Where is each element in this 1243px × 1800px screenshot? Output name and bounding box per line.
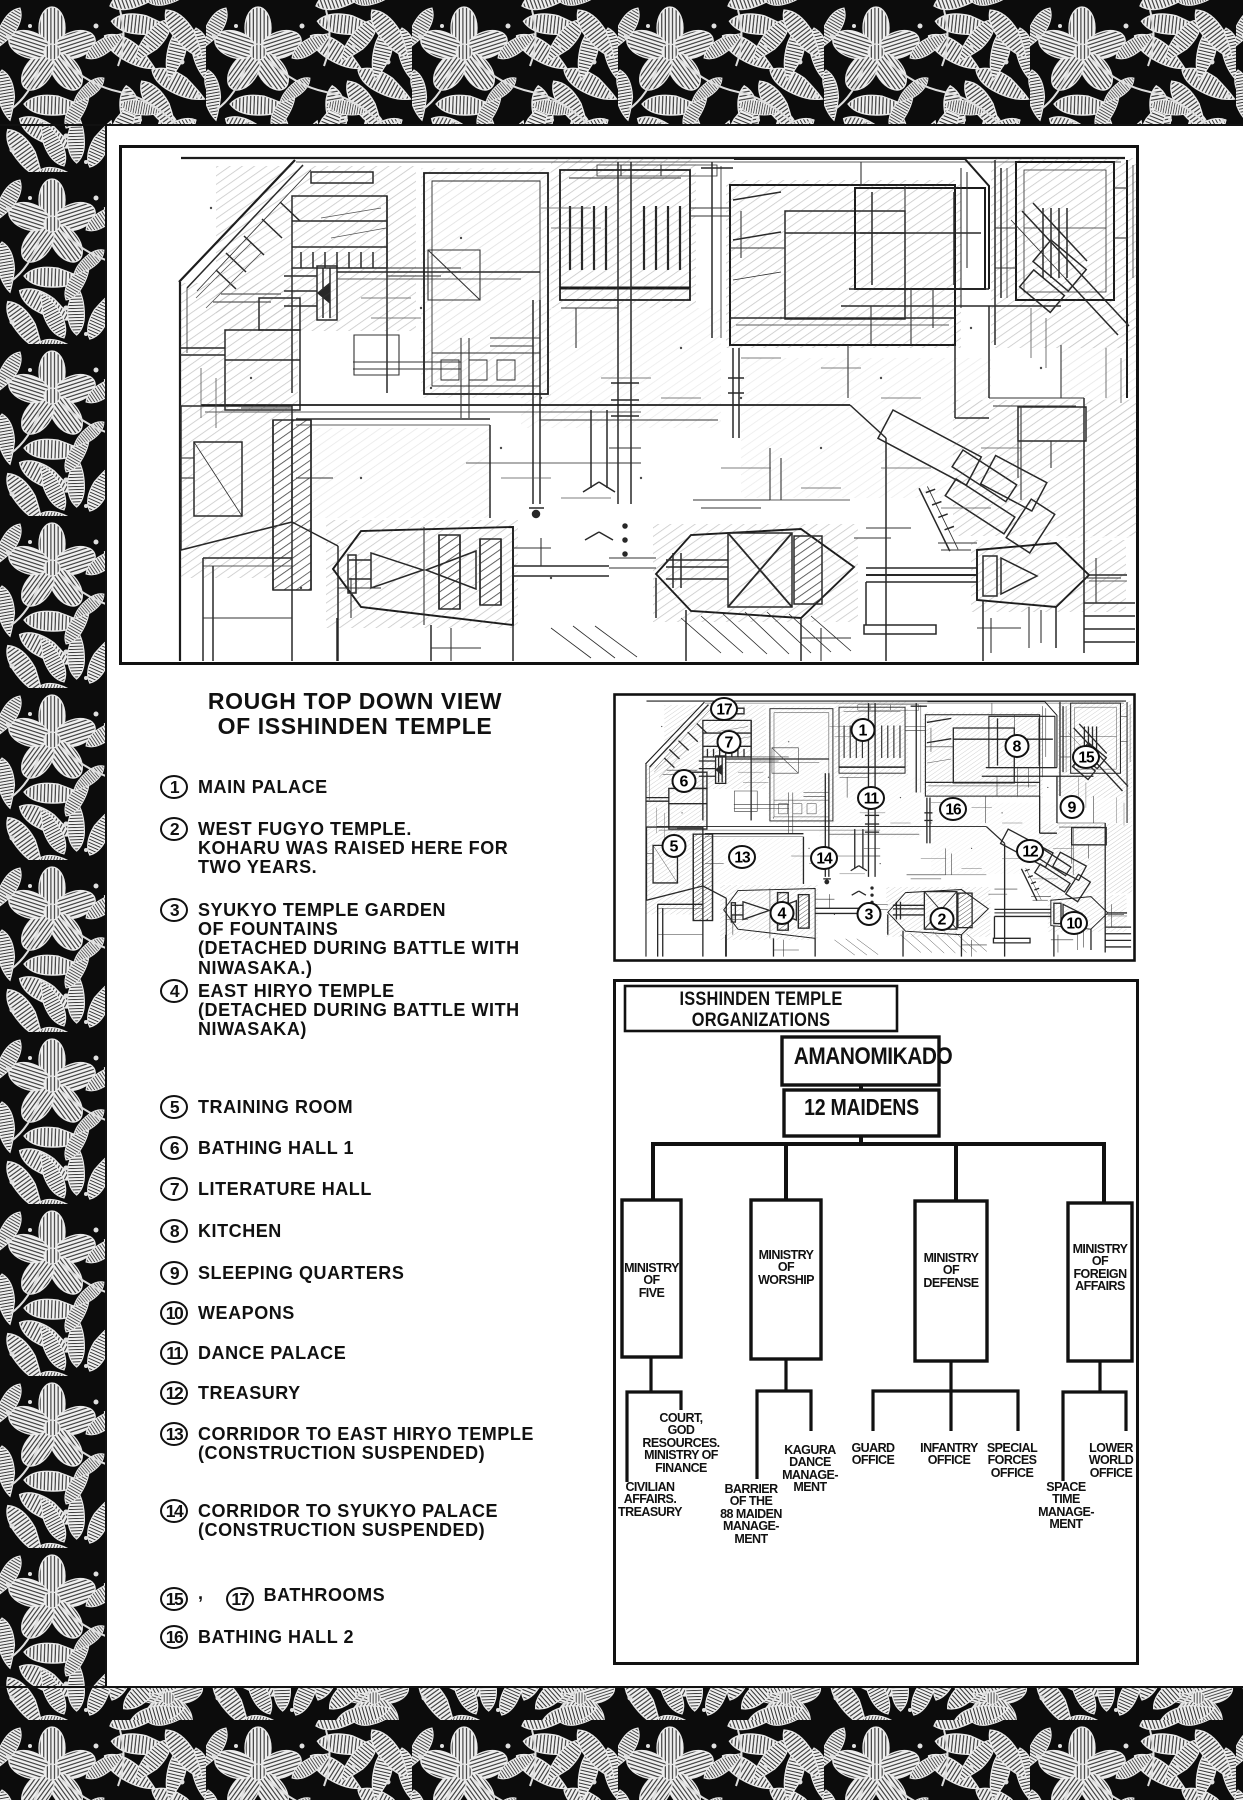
svg-text:12: 12 (1022, 844, 1038, 861)
svg-text:15: 15 (1078, 750, 1095, 767)
svg-text:1: 1 (859, 723, 868, 740)
svg-text:16: 16 (945, 802, 962, 819)
svg-text:14: 14 (816, 851, 833, 868)
svg-text:3: 3 (865, 907, 874, 924)
svg-text:9: 9 (1068, 800, 1077, 817)
svg-text:5: 5 (670, 839, 679, 856)
svg-text:2: 2 (938, 912, 947, 929)
svg-text:13: 13 (734, 850, 751, 867)
svg-text:7: 7 (725, 735, 734, 752)
svg-text:11: 11 (864, 791, 880, 808)
svg-text:4: 4 (778, 906, 787, 923)
svg-text:6: 6 (680, 774, 689, 791)
svg-text:10: 10 (1066, 916, 1082, 933)
svg-text:8: 8 (1013, 739, 1022, 756)
svg-text:17: 17 (716, 702, 732, 719)
